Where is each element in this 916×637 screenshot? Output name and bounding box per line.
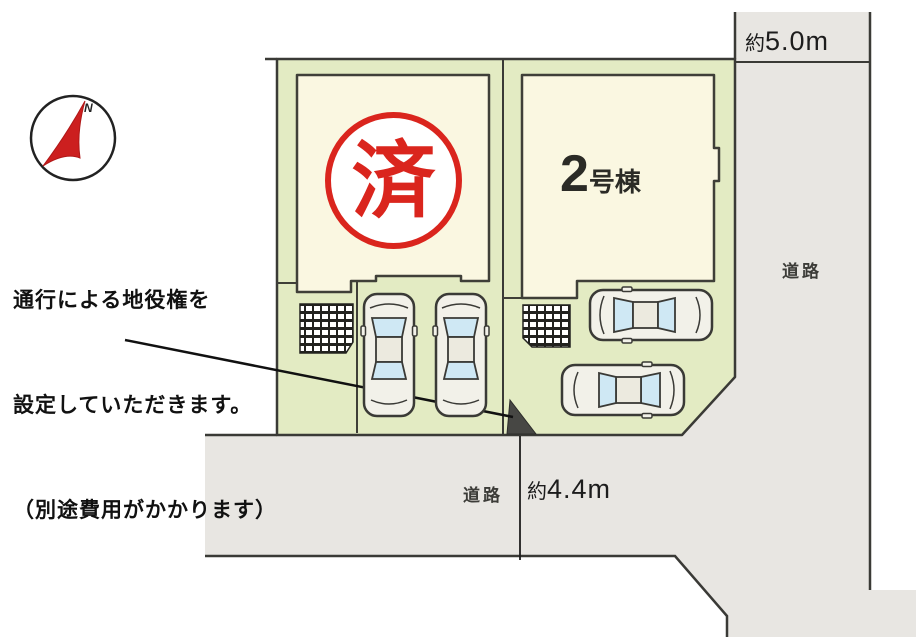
car-icon-plot2-bottom [562, 362, 684, 418]
unit-2-suffix: 号棟 [589, 162, 641, 199]
car-icon-plot1-right [433, 294, 489, 416]
sold-stamp-label: 済 [351, 139, 435, 223]
bottom-road-width-value: 4.4m [547, 474, 611, 505]
unit-2-label: 2 号棟 [560, 144, 641, 204]
right-road-width-prefix: 約 [745, 27, 765, 56]
right-road-label: 道路 [782, 257, 822, 282]
unit-2-number: 2 [560, 144, 589, 204]
right-road-width: 約 5.0m [745, 26, 829, 57]
sold-stamp: 済 [325, 112, 462, 249]
bottom-road-width: 約 4.4m [527, 474, 611, 505]
easement-annotation-line1: 通行による地役権を [13, 283, 277, 318]
easement-annotation-line2: 設定していただきます。 [13, 388, 277, 423]
hatch-grid-plot1 [300, 304, 353, 353]
compass-north-label: N [84, 101, 93, 115]
car-icon-plot2-top [590, 287, 712, 343]
bottom-road-label: 道路 [463, 481, 503, 506]
site-plan: N 通行による地役権を 設定していただきます。 （別途費用がかかります） 済 2… [0, 0, 916, 637]
easement-annotation-line3: （別途費用がかかります） [13, 493, 277, 528]
car-icon-plot1-left [361, 294, 417, 416]
easement-annotation: 通行による地役権を 設定していただきます。 （別途費用がかかります） [13, 213, 277, 598]
hatch-grid-plot2 [523, 305, 570, 347]
bottom-road-width-prefix: 約 [527, 475, 547, 504]
right-road-width-value: 5.0m [765, 26, 829, 57]
compass-icon [31, 96, 115, 180]
